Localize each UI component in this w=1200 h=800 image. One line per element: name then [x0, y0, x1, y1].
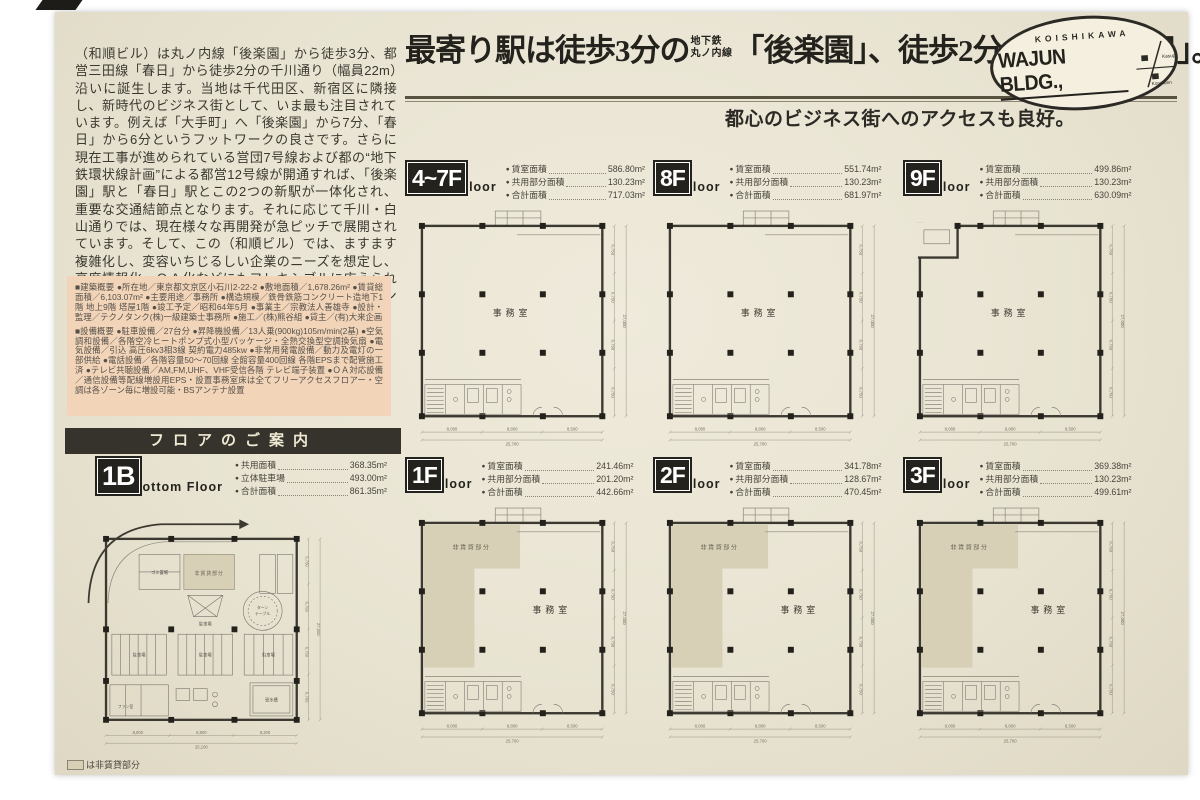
stat-label: 賃室面積 [985, 163, 1020, 176]
stat-value: 681.97m² [844, 189, 881, 202]
floor-badge-4-7f: 4~7F [407, 162, 466, 194]
floor-plan-drawing: 非賃貸部分 事務室6,7506,7506,7506,75027,0008,000… [910, 502, 1138, 748]
floor-badge-2f: 2F [655, 459, 690, 491]
stat-leader [278, 495, 348, 496]
svg-text:8,000: 8,000 [447, 724, 458, 729]
svg-text:8,800: 8,800 [507, 724, 518, 729]
svg-text:25,700: 25,700 [1004, 738, 1018, 743]
svg-text:6,750: 6,750 [1108, 340, 1113, 351]
stat-leader [773, 496, 843, 497]
stat-row: 賃室面積499.86m² [979, 163, 1131, 176]
basement-floor-plan: 非賃貸部分 ゴミ置場 駐車場 駐車場 駐車場 駐車場 ターン テーブル ファン室… [69, 498, 361, 755]
stat-leader [525, 470, 595, 471]
svg-text:事務室: 事務室 [780, 604, 819, 615]
basement-stats: 共用面積368.35m²立体駐車場493.00m²合計面積861.35m² [235, 459, 387, 498]
stat-row: 合計面積681.97m² [729, 189, 881, 202]
floor-suffix-4-7f: loor [469, 180, 497, 194]
floor-plan-drawing: 事務室6,7506,7506,7506,75027,0008,0008,8008… [910, 205, 1138, 451]
svg-text:非賃貸部分: 非賃貸部分 [950, 544, 988, 552]
stat-leader [542, 483, 594, 484]
floor-plan-drawing: 非賃貸部分 事務室6,7506,7506,7506,75027,0008,000… [412, 502, 640, 748]
stat-leader [287, 482, 348, 483]
svg-text:8,000: 8,000 [695, 427, 706, 432]
floor-badge-8f: 8F [655, 162, 690, 194]
floor-suffix-2f: loor [693, 477, 721, 491]
svg-text:テーブル: テーブル [255, 611, 270, 616]
svg-text:駐車場: 駐車場 [262, 652, 276, 659]
floor-card-9f: 9Floor賃室面積499.86m²共用部分面積130.23m²合計面積630.… [905, 162, 1143, 456]
floor-plan-1f: 非賃貸部分 事務室6,7506,7506,7506,75027,0008,000… [407, 502, 645, 753]
svg-text:6,750: 6,750 [1108, 637, 1113, 648]
svg-text:6,750: 6,750 [304, 602, 309, 613]
floor-card-3f: 3Floor賃室面積369.38m²共用部分面積130.23m²合計面積499.… [905, 459, 1143, 753]
svg-text:27,000: 27,000 [1120, 315, 1125, 329]
stat-label: 合計面積 [985, 189, 1020, 202]
svg-text:8,500: 8,500 [567, 427, 578, 432]
stat-value: 130.23m² [1094, 176, 1131, 189]
stat-label: 共用部分面積 [735, 473, 788, 486]
svg-text:6,750: 6,750 [1108, 387, 1113, 398]
shading-legend: は非賃貸部分 [67, 758, 140, 771]
stat-label: 共用部分面積 [985, 473, 1038, 486]
stat-row: 合計面積442.66m² [481, 486, 633, 499]
stat-row: 賃室面積341.78m² [729, 460, 881, 473]
stat-leader [1023, 496, 1093, 497]
floor-plan-4-7f: 事務室6,7506,7506,7506,75027,0008,0008,8008… [407, 205, 645, 456]
svg-text:駐車場: 駐車場 [199, 620, 213, 627]
floor-stats-3f: 賃室面積369.38m²共用部分面積130.23m²合計面積499.61m² [979, 460, 1131, 499]
stat-label: 共用面積 [241, 459, 276, 472]
stat-value: 369.38m² [1094, 460, 1131, 473]
floor-header-4-7f: 4~7Floor賃室面積586.80m²共用部分面積130.23m²合計面積71… [407, 162, 645, 202]
scan-artifact [35, 0, 82, 10]
floor-plan-drawing: 非賃貸部分 事務室6,7506,7506,7506,75027,0008,000… [660, 502, 888, 748]
stat-value: 201.20m² [596, 473, 633, 486]
stat-row: 立体駐車場493.00m² [235, 472, 387, 485]
stat-value: 368.35m² [350, 459, 387, 472]
floor-badge-9f: 9F [905, 162, 940, 194]
svg-text:6,750: 6,750 [858, 340, 863, 351]
svg-text:25,700: 25,700 [506, 738, 520, 743]
logo-name: WAJUN BLDG., [997, 41, 1128, 101]
floor-suffix-1f: loor [445, 477, 473, 491]
floor-card-2f: 2Floor賃室面積341.78m²共用部分面積128.67m²合計面積470.… [655, 459, 893, 753]
svg-text:25,700: 25,700 [754, 738, 768, 743]
svg-text:事務室: 事務室 [532, 604, 571, 615]
svg-text:6,750: 6,750 [304, 647, 309, 658]
basement-header: 1B ottom Floor 共用面積368.35m²立体駐車場493.00m²… [97, 458, 387, 498]
headline-ruby-marunouchi: 地下鉄 丸ノ内線 [691, 36, 733, 60]
stat-value: 499.61m² [1094, 486, 1131, 499]
brochure-page: （和順ビル）は丸ノ内線「後楽園」から徒歩3分、都営三田線「春日」から徒歩2分の千… [55, 12, 1188, 775]
svg-text:27,000: 27,000 [870, 315, 875, 329]
svg-text:27,000: 27,000 [622, 612, 627, 626]
stat-label: 合計面積 [735, 486, 770, 499]
floor-card-4-7f: 4~7Floor賃室面積586.80m²共用部分面積130.23m²合計面積71… [407, 162, 645, 456]
stat-leader [1023, 173, 1093, 174]
stat-leader [566, 186, 605, 187]
svg-text:27,000: 27,000 [622, 315, 627, 329]
stat-leader [790, 186, 842, 187]
stat-value: 861.35m² [350, 485, 387, 498]
svg-text:ターン: ターン [257, 605, 269, 610]
svg-text:6,750: 6,750 [858, 244, 863, 255]
legend-text: は非賃貸部分 [86, 758, 140, 771]
stat-label: 合計面積 [241, 485, 276, 498]
stat-leader [278, 469, 348, 470]
stat-row: 共用部分面積130.23m² [979, 176, 1131, 189]
floor-header-2f: 2Floor賃室面積341.78m²共用部分面積128.67m²合計面積470.… [655, 459, 893, 499]
floor-plan-2f: 非賃貸部分 事務室6,7506,7506,7506,75027,0008,000… [655, 502, 893, 753]
svg-text:8,800: 8,800 [1005, 427, 1016, 432]
svg-text:6,750: 6,750 [610, 244, 615, 255]
floor-plan-drawing: 事務室6,7506,7506,7506,75027,0008,0008,8008… [412, 205, 640, 451]
svg-text:6,750: 6,750 [1108, 684, 1113, 695]
svg-text:6,750: 6,750 [1108, 541, 1113, 552]
svg-text:25,700: 25,700 [506, 441, 520, 446]
svg-text:事務室: 事務室 [741, 307, 780, 318]
svg-text:6,750: 6,750 [858, 637, 863, 648]
floor-plan-9f: 事務室6,7506,7506,7506,75027,0008,0008,8008… [905, 205, 1143, 456]
stat-value: 499.86m² [1094, 163, 1131, 176]
svg-text:事務室: 事務室 [493, 307, 532, 318]
stat-value: 470.45m² [844, 486, 881, 499]
floor-header-1f: 1Floor賃室面積241.46m²共用部分面積201.20m²合計面積442.… [407, 459, 645, 499]
svg-text:8,000: 8,000 [945, 724, 956, 729]
svg-text:6,750: 6,750 [858, 292, 863, 303]
stat-label: 共用部分面積 [512, 176, 565, 189]
svg-text:8,500: 8,500 [815, 427, 826, 432]
floor-suffix-9f: loor [943, 180, 971, 194]
stat-value: 128.67m² [844, 473, 881, 486]
svg-text:6,750: 6,750 [610, 684, 615, 695]
floor-header-9f: 9Floor賃室面積499.86m²共用部分面積130.23m²合計面積630.… [905, 162, 1143, 202]
stat-value: 130.23m² [844, 176, 881, 189]
floor-plan-drawing: 非賃貸部分 ゴミ置場 駐車場 駐車場 駐車場 駐車場 ターン テーブル ファン室… [69, 498, 361, 750]
stat-value: 130.23m² [1094, 473, 1131, 486]
svg-text:8,800: 8,800 [507, 427, 518, 432]
floor-badge-3f: 3F [905, 459, 940, 491]
stat-value: 130.23m² [608, 176, 645, 189]
floor-suffix-8f: loor [693, 180, 721, 194]
floor-stats-1f: 賃室面積241.46m²共用部分面積201.20m²合計面積442.66m² [481, 460, 633, 499]
svg-text:6,750: 6,750 [858, 541, 863, 552]
building-overview-box: ■建築概要 ●所在地／東京都文京区小石川2-22-2 ●敷地面積／1,678.2… [67, 276, 391, 416]
svg-text:8,200: 8,200 [260, 730, 271, 735]
svg-text:ファン室: ファン室 [118, 704, 134, 709]
stat-row: 賃室面積586.80m² [506, 163, 645, 176]
floor-stats-8f: 賃室面積551.74m²共用部分面積130.23m²合計面積681.97m² [729, 163, 881, 202]
svg-text:25,100: 25,100 [195, 745, 208, 750]
svg-text:8,800: 8,800 [1005, 724, 1016, 729]
headline-part1: 最寄り駅は徒歩3分の [405, 25, 690, 70]
floor-plan-drawing: 事務室6,7506,7506,7506,75027,0008,0008,8008… [660, 205, 888, 451]
svg-text:Kasuga: Kasuga [1161, 53, 1177, 59]
svg-text:非賃貸部分: 非賃貸部分 [452, 544, 490, 552]
svg-text:5,750: 5,750 [304, 556, 309, 567]
svg-text:25,700: 25,700 [1004, 441, 1018, 446]
stat-row: 共用部分面積130.23m² [729, 176, 881, 189]
svg-text:駐車場: 駐車場 [133, 652, 147, 659]
floor-stats-2f: 賃室面積341.78m²共用部分面積128.67m²合計面積470.45m² [729, 460, 881, 499]
stat-leader [773, 173, 843, 174]
floor-suffix-1b: ottom Floor [143, 480, 223, 494]
svg-text:8,500: 8,500 [567, 724, 578, 729]
headline-part2: 「後楽園」、徒歩2分の [734, 25, 1033, 70]
stat-row: 合計面積861.35m² [235, 485, 387, 498]
svg-text:駐車場: 駐車場 [199, 652, 213, 659]
svg-text:8,500: 8,500 [815, 724, 826, 729]
stat-row: 賃室面積241.46m² [481, 460, 633, 473]
subheadline: 都心のビジネス街へのアクセスも良好。 [710, 104, 1090, 131]
legend-swatch [67, 760, 84, 770]
stat-leader [773, 199, 843, 200]
stat-leader [773, 470, 843, 471]
stat-row: 共用部分面積130.23m² [506, 176, 645, 189]
svg-text:受水槽: 受水槽 [265, 696, 279, 703]
facilities-overview-text: ■設備概要 ●駐車設備／27台分 ●昇降機設備／13人乗(900kg)105m/… [75, 327, 383, 396]
stat-row: 合計面積470.45m² [729, 486, 881, 499]
svg-text:6,750: 6,750 [304, 692, 309, 703]
svg-text:6,750: 6,750 [610, 589, 615, 600]
stat-label: 共用部分面積 [985, 176, 1038, 189]
svg-text:27,000: 27,000 [870, 612, 875, 626]
stat-value: 630.09m² [1094, 189, 1131, 202]
stat-label: 共用部分面積 [487, 473, 540, 486]
stat-leader [1023, 470, 1093, 471]
logo-map-icon: Kasuga Korakuen [1132, 37, 1177, 92]
stat-value: 241.46m² [596, 460, 633, 473]
svg-text:事務室: 事務室 [1030, 604, 1069, 615]
floor-card-1f: 1Floor賃室面積241.46m²共用部分面積201.20m²合計面積442.… [407, 459, 645, 753]
svg-text:ゴミ置場: ゴミ置場 [151, 569, 169, 576]
svg-text:8,000: 8,000 [133, 730, 144, 735]
floor-guide-header: フロアのご案内 [65, 428, 401, 454]
svg-text:6,750: 6,750 [610, 387, 615, 398]
stat-value: 341.78m² [844, 460, 881, 473]
svg-text:8,000: 8,000 [945, 427, 956, 432]
stat-row: 合計面積499.61m² [979, 486, 1131, 499]
svg-text:27,000: 27,000 [1120, 612, 1125, 626]
stat-leader [1023, 199, 1093, 200]
svg-text:6,750: 6,750 [858, 684, 863, 695]
stat-row: 共用部分面積128.67m² [729, 473, 881, 486]
stat-row: 共用部分面積130.23m² [979, 473, 1131, 486]
svg-text:8,800: 8,800 [196, 730, 207, 735]
stat-leader [525, 496, 595, 497]
stat-value: 586.80m² [608, 163, 645, 176]
stat-leader [549, 199, 606, 200]
stat-leader [1040, 186, 1092, 187]
svg-text:Korakuen: Korakuen [1151, 80, 1172, 86]
svg-text:6,750: 6,750 [610, 541, 615, 552]
svg-text:8,000: 8,000 [695, 724, 706, 729]
stat-row: 共用部分面積201.20m² [481, 473, 633, 486]
stat-label: 合計面積 [487, 486, 522, 499]
svg-text:非賃貸部分: 非賃貸部分 [195, 570, 224, 577]
floor-suffix-3f: loor [943, 477, 971, 491]
stat-label: 賃室面積 [735, 460, 770, 473]
stat-label: 立体駐車場 [241, 472, 285, 485]
svg-text:6,750: 6,750 [1108, 292, 1113, 303]
stat-leader [549, 173, 606, 174]
stat-label: 賃室面積 [512, 163, 547, 176]
stat-row: 合計面積717.03m² [506, 189, 645, 202]
stat-row: 合計面積630.09m² [979, 189, 1131, 202]
stat-label: 合計面積 [985, 486, 1020, 499]
svg-text:6,750: 6,750 [610, 637, 615, 648]
stat-value: 717.03m² [608, 189, 645, 202]
floor-header-8f: 8Floor賃室面積551.74m²共用部分面積130.23m²合計面積681.… [655, 162, 893, 202]
stat-row: 共用面積368.35m² [235, 459, 387, 472]
floor-stats-9f: 賃室面積499.86m²共用部分面積130.23m²合計面積630.09m² [979, 163, 1131, 202]
svg-text:6,750: 6,750 [858, 387, 863, 398]
stat-value: 493.00m² [350, 472, 387, 485]
svg-text:事務室: 事務室 [991, 307, 1030, 318]
floor-header-3f: 3Floor賃室面積369.38m²共用部分面積130.23m²合計面積499.… [905, 459, 1143, 499]
svg-text:25,700: 25,700 [754, 441, 768, 446]
stat-label: 賃室面積 [735, 163, 770, 176]
svg-text:27,000: 27,000 [316, 623, 321, 636]
svg-text:6,750: 6,750 [610, 292, 615, 303]
stat-label: 合計面積 [512, 189, 547, 202]
stat-label: 共用部分面積 [735, 176, 788, 189]
svg-text:8,500: 8,500 [1065, 724, 1076, 729]
svg-text:8,500: 8,500 [1065, 427, 1076, 432]
svg-text:8,000: 8,000 [447, 427, 458, 432]
stat-leader [790, 483, 842, 484]
svg-text:6,750: 6,750 [858, 589, 863, 600]
floor-badge-1f: 1F [407, 459, 442, 491]
stat-label: 合計面積 [735, 189, 770, 202]
stat-value: 551.74m² [844, 163, 881, 176]
floor-plan-8f: 事務室6,7506,7506,7506,75027,0008,0008,8008… [655, 205, 893, 456]
svg-text:非賃貸部分: 非賃貸部分 [700, 544, 738, 552]
floor-plan-3f: 非賃貸部分 事務室6,7506,7506,7506,75027,0008,000… [905, 502, 1143, 753]
svg-text:8,800: 8,800 [755, 427, 766, 432]
floor-badge-1b: 1B [97, 458, 140, 494]
svg-text:6,750: 6,750 [1108, 589, 1113, 600]
stat-row: 賃室面積369.38m² [979, 460, 1131, 473]
stat-leader [1040, 483, 1092, 484]
building-overview-text: ■建築概要 ●所在地／東京都文京区小石川2-22-2 ●敷地面積／1,678.2… [75, 283, 383, 323]
svg-text:8,800: 8,800 [755, 724, 766, 729]
stat-value: 442.66m² [596, 486, 633, 499]
svg-text:6,750: 6,750 [1108, 244, 1113, 255]
stat-label: 賃室面積 [985, 460, 1020, 473]
floor-card-8f: 8Floor賃室面積551.74m²共用部分面積130.23m²合計面積681.… [655, 162, 893, 456]
stat-label: 賃室面積 [487, 460, 522, 473]
stat-row: 賃室面積551.74m² [729, 163, 881, 176]
svg-text:6,750: 6,750 [610, 340, 615, 351]
floor-stats-4-7f: 賃室面積586.80m²共用部分面積130.23m²合計面積717.03m² [506, 163, 645, 202]
